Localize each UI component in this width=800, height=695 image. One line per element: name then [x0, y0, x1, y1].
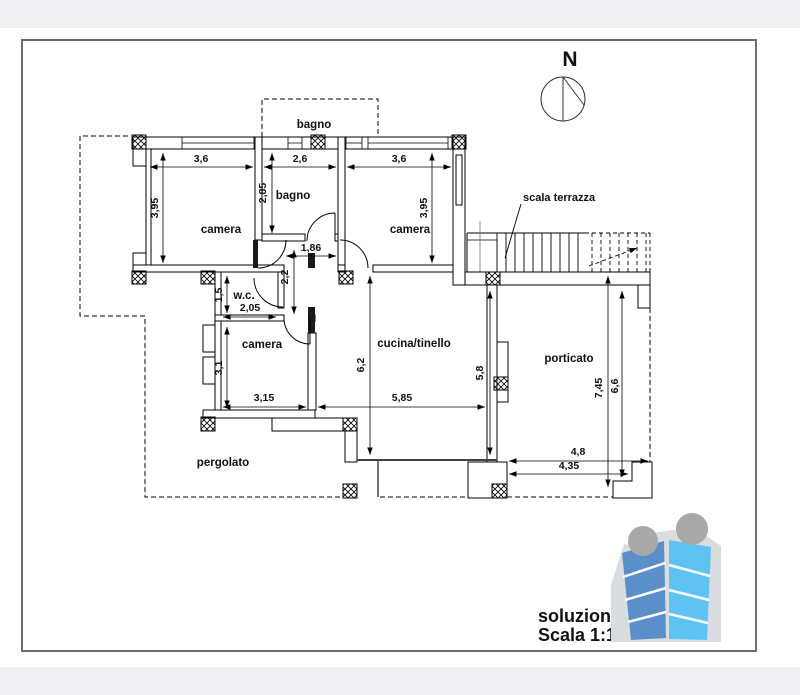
- bottom-strip: [0, 667, 800, 695]
- dim-label: 1,5: [213, 288, 225, 303]
- dim-label: 5,85: [392, 392, 413, 404]
- logo-left-head: [628, 526, 658, 556]
- floor-plan-drawing: 3,6 2,6 3,6 1,86 2,05 3,15 5,85 4,8 4,35…: [0, 0, 800, 695]
- room-label-bagno-top: bagno: [297, 119, 332, 131]
- dim-label: 5,8: [474, 366, 486, 381]
- dim-label: 3,1: [213, 361, 225, 376]
- dim-label: 2,6: [293, 153, 308, 165]
- dim-label: 4,35: [559, 460, 580, 472]
- dim-label: 3,6: [392, 153, 407, 165]
- wall-wc-south: [215, 315, 284, 321]
- pillar: [486, 272, 500, 285]
- dim-label: 3,95: [418, 198, 430, 219]
- dim-label: 3,6: [194, 153, 209, 165]
- room-label-camera-sw: camera: [242, 339, 283, 351]
- wall-camera-sw-east: [308, 333, 316, 410]
- pillar: [201, 271, 215, 284]
- dim-label: 4,8: [571, 446, 586, 458]
- dim-label: 2,85: [257, 183, 269, 204]
- room-label-camera-ne: camera: [390, 224, 431, 236]
- dim-label: 2,05: [240, 302, 261, 314]
- dim-label: 2,2: [279, 270, 291, 285]
- room-label-porticato: porticato: [544, 353, 593, 365]
- logo-right-head: [676, 513, 708, 545]
- pillar: [494, 377, 508, 390]
- room-label-pergolato: pergolato: [197, 457, 249, 469]
- wall-camera-sw-south: [203, 410, 315, 418]
- pillar: [343, 418, 357, 431]
- dim-label: 6,2: [355, 358, 367, 373]
- dim-label: 1,86: [301, 242, 322, 254]
- dim-label: 3,95: [149, 198, 161, 219]
- north-label: N: [562, 48, 577, 71]
- room-label-cucina: cucina/tinello: [377, 338, 451, 350]
- room-label-wc: w.c.: [232, 290, 254, 302]
- pillar: [492, 484, 507, 498]
- room-label-bagno: bagno: [276, 190, 311, 202]
- pillar: [311, 135, 325, 149]
- floor-plan-page: 3,6 2,6 3,6 1,86 2,05 3,15 5,85 4,8 4,35…: [0, 0, 800, 695]
- porticato-wall-element: [497, 342, 508, 402]
- wall-camera-ne-south: [373, 265, 465, 272]
- dim-label: 3,15: [254, 392, 275, 404]
- room-label-camera-nw: camera: [201, 224, 242, 236]
- dim-label: 7,45: [593, 378, 605, 399]
- wall-bagno-camera-ne: [338, 137, 345, 265]
- dim-label: 6,6: [609, 379, 621, 394]
- stairs-label: scala terrazza: [523, 192, 596, 204]
- pillar: [132, 135, 146, 149]
- pillar: [452, 135, 466, 149]
- pillar: [343, 484, 357, 498]
- pillar: [201, 417, 215, 431]
- wall-cucina-porticato: [487, 285, 497, 463]
- logo-right-figure: [669, 540, 711, 640]
- top-strip: [0, 0, 800, 28]
- pillar: [132, 271, 146, 284]
- pillar: [339, 271, 353, 284]
